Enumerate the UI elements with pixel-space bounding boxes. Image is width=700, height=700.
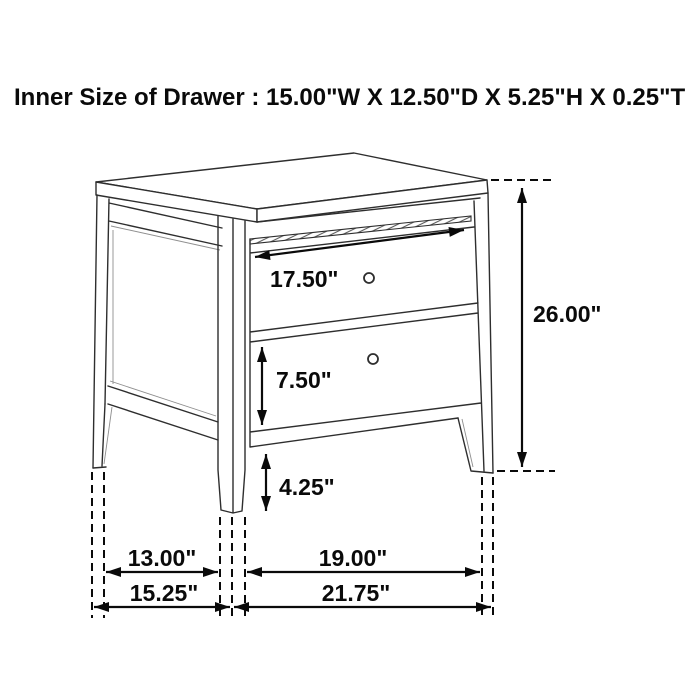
dim-label-overall-depth: 15.25" — [130, 580, 198, 606]
dim-label-front-foot-span: 19.00" — [319, 545, 387, 571]
drawer-knob-bottom — [368, 354, 378, 364]
nightstand-dimension-diagram-page: Inner Size of Drawer : 15.00"W X 12.50"D… — [0, 0, 700, 700]
dim-label-bottom-drawer-height: 7.50" — [276, 367, 332, 393]
dim-label-side-foot-span: 13.00" — [128, 545, 196, 571]
drawer-knob-top — [364, 273, 374, 283]
dim-label-top-drawer-width: 17.50" — [270, 266, 338, 292]
nightstand-dimension-diagram: Inner Size of Drawer : 15.00"W X 12.50"D… — [0, 0, 700, 700]
dim-label-overall-height: 26.00" — [533, 301, 601, 327]
dim-label-leg-height: 4.25" — [279, 474, 335, 500]
dim-label-overall-width: 21.75" — [322, 580, 390, 606]
page-title: Inner Size of Drawer : 15.00"W X 12.50"D… — [14, 84, 685, 111]
